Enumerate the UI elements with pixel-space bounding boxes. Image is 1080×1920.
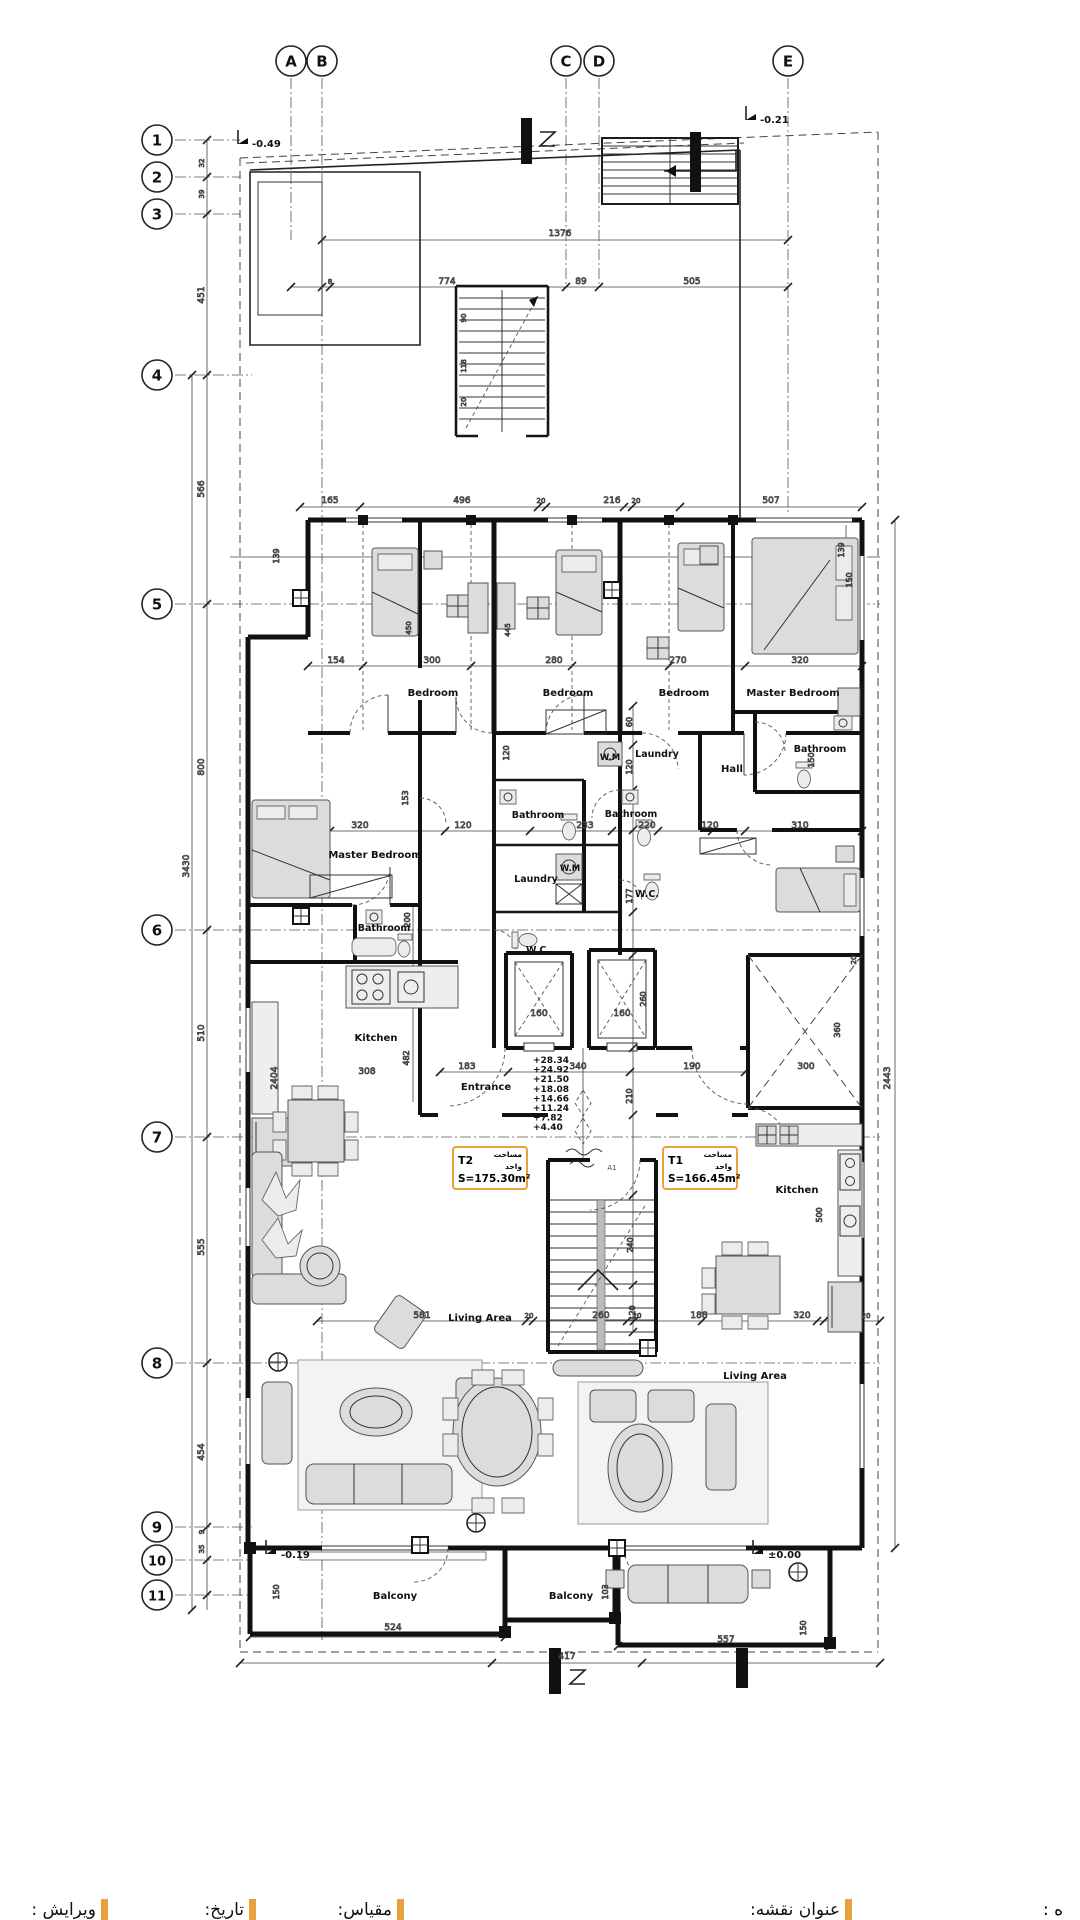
floor-plan-drawing: 1376877489505165496202162050732394515668… <box>0 0 1080 1920</box>
sink <box>834 716 852 730</box>
core-levels-list: +28.34+24.92+21.50+18.08+14.66+11.24+7.8… <box>533 1056 569 1133</box>
titleblock-field-label: عنوان نقشه: <box>750 1900 840 1920</box>
text-room: Bathroom <box>512 810 565 821</box>
toilet <box>398 934 412 957</box>
text-dim: 505 <box>683 277 700 287</box>
text-room: Balcony <box>549 1591 594 1602</box>
washing-machine <box>556 884 582 904</box>
sink <box>366 910 382 924</box>
text-dim: 557 <box>717 1635 734 1645</box>
text-marker: -0.21 <box>760 115 789 126</box>
bed-single <box>776 868 860 912</box>
text-dim: 20 <box>460 398 468 407</box>
text-dim: 188 <box>690 1311 707 1321</box>
living-right <box>578 1382 768 1524</box>
titleblock-field-label: تاریخ: <box>204 1900 244 1920</box>
void-patio <box>748 955 862 1108</box>
text-marker: -0.49 <box>252 139 281 150</box>
text-dim: 308 <box>358 1067 375 1077</box>
text-room: Balcony <box>373 1591 418 1602</box>
text-room: 9 <box>152 1519 162 1537</box>
titleblock-orange-tick-icon <box>101 1899 108 1920</box>
unit-area-value: S=175.30m² <box>458 1173 522 1186</box>
closet <box>546 710 606 734</box>
text-dim: 360 <box>833 1022 842 1037</box>
text-room: 7 <box>152 1129 162 1147</box>
unit-area-value: S=166.45m² <box>668 1173 732 1186</box>
bed-double <box>252 800 330 898</box>
text-level: +28.34 <box>533 1056 569 1066</box>
titleblock-field: ویرایش : <box>31 1899 108 1920</box>
text-dim: 165 <box>321 496 338 506</box>
text-dim: 451 <box>197 286 207 303</box>
text-room: Kitchen <box>776 1185 819 1196</box>
text-room: Bathroom <box>358 923 411 934</box>
text-room: 5 <box>152 596 162 614</box>
text-room: Master Bedroom <box>328 850 421 861</box>
text-room: Bathroom <box>605 809 658 820</box>
kitchen-left <box>252 966 458 1166</box>
text-dim: 280 <box>545 656 562 666</box>
text-room: W.C. <box>526 945 550 956</box>
text-dim: 3430 <box>182 854 192 877</box>
titleblock-field: تاریخ: <box>204 1899 256 1920</box>
text-dim: 150 <box>272 1584 281 1599</box>
text-dim: 177 <box>625 888 634 903</box>
text-dim: 20 <box>537 497 546 505</box>
text-room: 4 <box>152 367 162 385</box>
text-dim: 555 <box>197 1238 207 1255</box>
text-dim: 32 <box>198 159 206 168</box>
text-dim: 510 <box>197 1024 207 1041</box>
text-dim: 20 <box>525 1312 534 1320</box>
unit-area-label-fa: مساحت واحد <box>689 1149 732 1173</box>
unit-name: T1 <box>668 1155 683 1167</box>
side-table <box>527 597 549 619</box>
text-level: +24.92 <box>533 1066 569 1076</box>
text-dim: 800 <box>197 758 207 775</box>
north-z-icon <box>540 132 555 146</box>
closet <box>700 838 756 854</box>
text-room: 10 <box>148 1555 166 1570</box>
text-dim: 445 <box>504 623 512 636</box>
roof-stair <box>456 286 548 436</box>
text-dim: 139 <box>272 548 281 563</box>
unit-area-tag-T1: T1مساحت واحدS=166.45m² <box>662 1146 738 1190</box>
text-dim: 500 <box>815 1207 824 1222</box>
text-dim: 310 <box>791 821 808 831</box>
text-note: A1 <box>607 1164 616 1172</box>
text-room: W.M <box>600 753 620 763</box>
text-dim: 120 <box>502 745 511 760</box>
text-dim: 160 <box>530 1009 547 1019</box>
main-stair <box>550 1160 654 1350</box>
text-dim: 2443 <box>883 1067 893 1090</box>
text-level: +14.66 <box>533 1094 569 1104</box>
text-dim: 220 <box>638 821 655 831</box>
titleblock-orange-tick-icon <box>249 1899 256 1920</box>
sink <box>500 790 516 804</box>
text-dim: 260 <box>639 991 648 1006</box>
text-dim: 417 <box>558 1652 575 1662</box>
text-dim: 260 <box>592 1311 609 1321</box>
text-dim: 103 <box>601 1584 610 1599</box>
text-room: Master Bedroom <box>746 688 839 699</box>
text-room: Bedroom <box>659 688 710 699</box>
unit-name: T2 <box>458 1155 473 1167</box>
titleblock-orange-tick-icon <box>397 1899 404 1920</box>
text-room: Living Area <box>723 1371 787 1382</box>
text-room: B <box>316 53 327 71</box>
text-dim: 150 <box>799 1620 808 1635</box>
dining-right <box>702 1242 780 1329</box>
titleblock-field-label: مقیاس: <box>338 1900 393 1920</box>
text-room: 6 <box>152 922 162 940</box>
text-dim: 496 <box>453 496 470 506</box>
text-dim: 154 <box>327 656 344 666</box>
text-dim: 139 <box>837 542 846 557</box>
text-dim: 320 <box>351 821 368 831</box>
text-level: +4.40 <box>533 1123 563 1133</box>
text-dim: 320 <box>793 1311 810 1321</box>
titleblock-field-label: ویرایش : <box>31 1900 96 1920</box>
text-room: E <box>783 53 793 71</box>
text-dim: 35 <box>198 1545 206 1554</box>
upper-terrace <box>250 150 740 520</box>
text-dim: 190 <box>683 1062 700 1072</box>
balcony-sofa <box>606 1565 770 1603</box>
text-dim: 20 <box>862 1312 871 1320</box>
text-room: Living Area <box>448 1313 512 1324</box>
side-table <box>647 637 669 659</box>
text-room: Bathroom <box>794 744 847 755</box>
text-dim: 454 <box>197 1443 207 1460</box>
text-dim: 39 <box>198 190 206 199</box>
text-room: 8 <box>152 1355 162 1373</box>
text-dim: 120 <box>454 821 471 831</box>
text-dim: 450 <box>405 621 413 634</box>
upper-right-stair <box>602 138 738 204</box>
text-room: W.C. <box>635 889 659 900</box>
text-dim: 507 <box>762 496 779 506</box>
text-dim: 8 <box>328 278 332 286</box>
titleblock-field: مقیاس: <box>338 1899 405 1920</box>
text-dim: 240 <box>626 1237 635 1252</box>
text-dim: 120 <box>625 759 634 774</box>
text-room: 11 <box>148 1590 166 1605</box>
sink <box>622 790 638 804</box>
titleblock-field: عنوان نقشه: <box>750 1899 852 1920</box>
text-dim: 566 <box>197 480 207 497</box>
text-dim: 524 <box>384 1623 401 1633</box>
text-room: Kitchen <box>355 1033 398 1044</box>
text-dim: 150 <box>845 572 854 587</box>
text-room: Entrance <box>461 1082 511 1093</box>
text-dim: 1376 <box>549 229 572 239</box>
text-dim: 300 <box>423 656 440 666</box>
text-room: A <box>285 53 297 71</box>
unit-area-label-fa: مساحت واحد <box>479 1149 522 1173</box>
text-room: Laundry <box>635 749 679 760</box>
text-room: W.M <box>560 864 580 874</box>
text-dim: 482 <box>402 1050 411 1065</box>
living-left-mid <box>252 1152 427 1350</box>
text-room: 1 <box>152 132 162 150</box>
text-dim: 118 <box>460 359 468 372</box>
text-dim: 340 <box>569 1062 586 1072</box>
text-level: +11.24 <box>533 1104 569 1114</box>
bed-single <box>556 550 602 635</box>
text-room: 2 <box>152 169 162 187</box>
titleblock-partial-label: ه : <box>1043 1900 1063 1920</box>
text-dim: 183 <box>458 1062 475 1072</box>
north-z-icon <box>570 1670 585 1684</box>
text-dim: 2404 <box>270 1066 280 1089</box>
text-room: Hall <box>721 764 743 775</box>
text-dim: 300 <box>797 1062 814 1072</box>
text-marker: -0.19 <box>281 1550 310 1561</box>
text-dim: 90 <box>460 314 468 323</box>
text-room: Bedroom <box>543 688 594 699</box>
text-dim: 233 <box>576 821 593 831</box>
text-room: 3 <box>152 206 162 224</box>
text-dim: 60 <box>625 717 634 727</box>
text-level: +18.08 <box>533 1085 569 1095</box>
text-dim: 774 <box>438 277 455 287</box>
text-dim: 20 <box>632 497 641 505</box>
text-dim: 581 <box>413 1311 430 1321</box>
text-dim: 20 <box>633 1312 642 1320</box>
text-dim: 320 <box>791 656 808 666</box>
text-marker: ±0.00 <box>768 1550 801 1561</box>
text-dim: 270 <box>669 656 686 666</box>
floor-plan-sheet: 1376877489505165496202162050732394515668… <box>0 0 1080 1920</box>
text-dim: 160 <box>613 1009 630 1019</box>
text-room: D <box>593 53 605 71</box>
side-table <box>447 595 469 617</box>
text-dim: 89 <box>575 277 587 287</box>
titleblock-orange-tick-icon <box>845 1899 852 1920</box>
text-room: Laundry <box>514 874 558 885</box>
text-room: C <box>560 53 571 71</box>
text-dim: 216 <box>603 496 620 506</box>
unit-area-tag-T2: T2مساحت واحدS=175.30m² <box>452 1146 528 1190</box>
title-block-strip: ه : عنوان نقشه:مقیاس:تاریخ:ویرایش : <box>0 1876 1080 1920</box>
text-room: Bedroom <box>408 688 459 699</box>
text-level: +21.50 <box>533 1075 569 1085</box>
text-dim: 210 <box>625 1088 634 1103</box>
text-dim: 9 <box>198 1530 206 1534</box>
text-dim: 153 <box>401 790 410 805</box>
text-dim: 120 <box>701 821 718 831</box>
text-level: +7.82 <box>533 1114 563 1124</box>
text-dim: 20 <box>850 956 858 965</box>
